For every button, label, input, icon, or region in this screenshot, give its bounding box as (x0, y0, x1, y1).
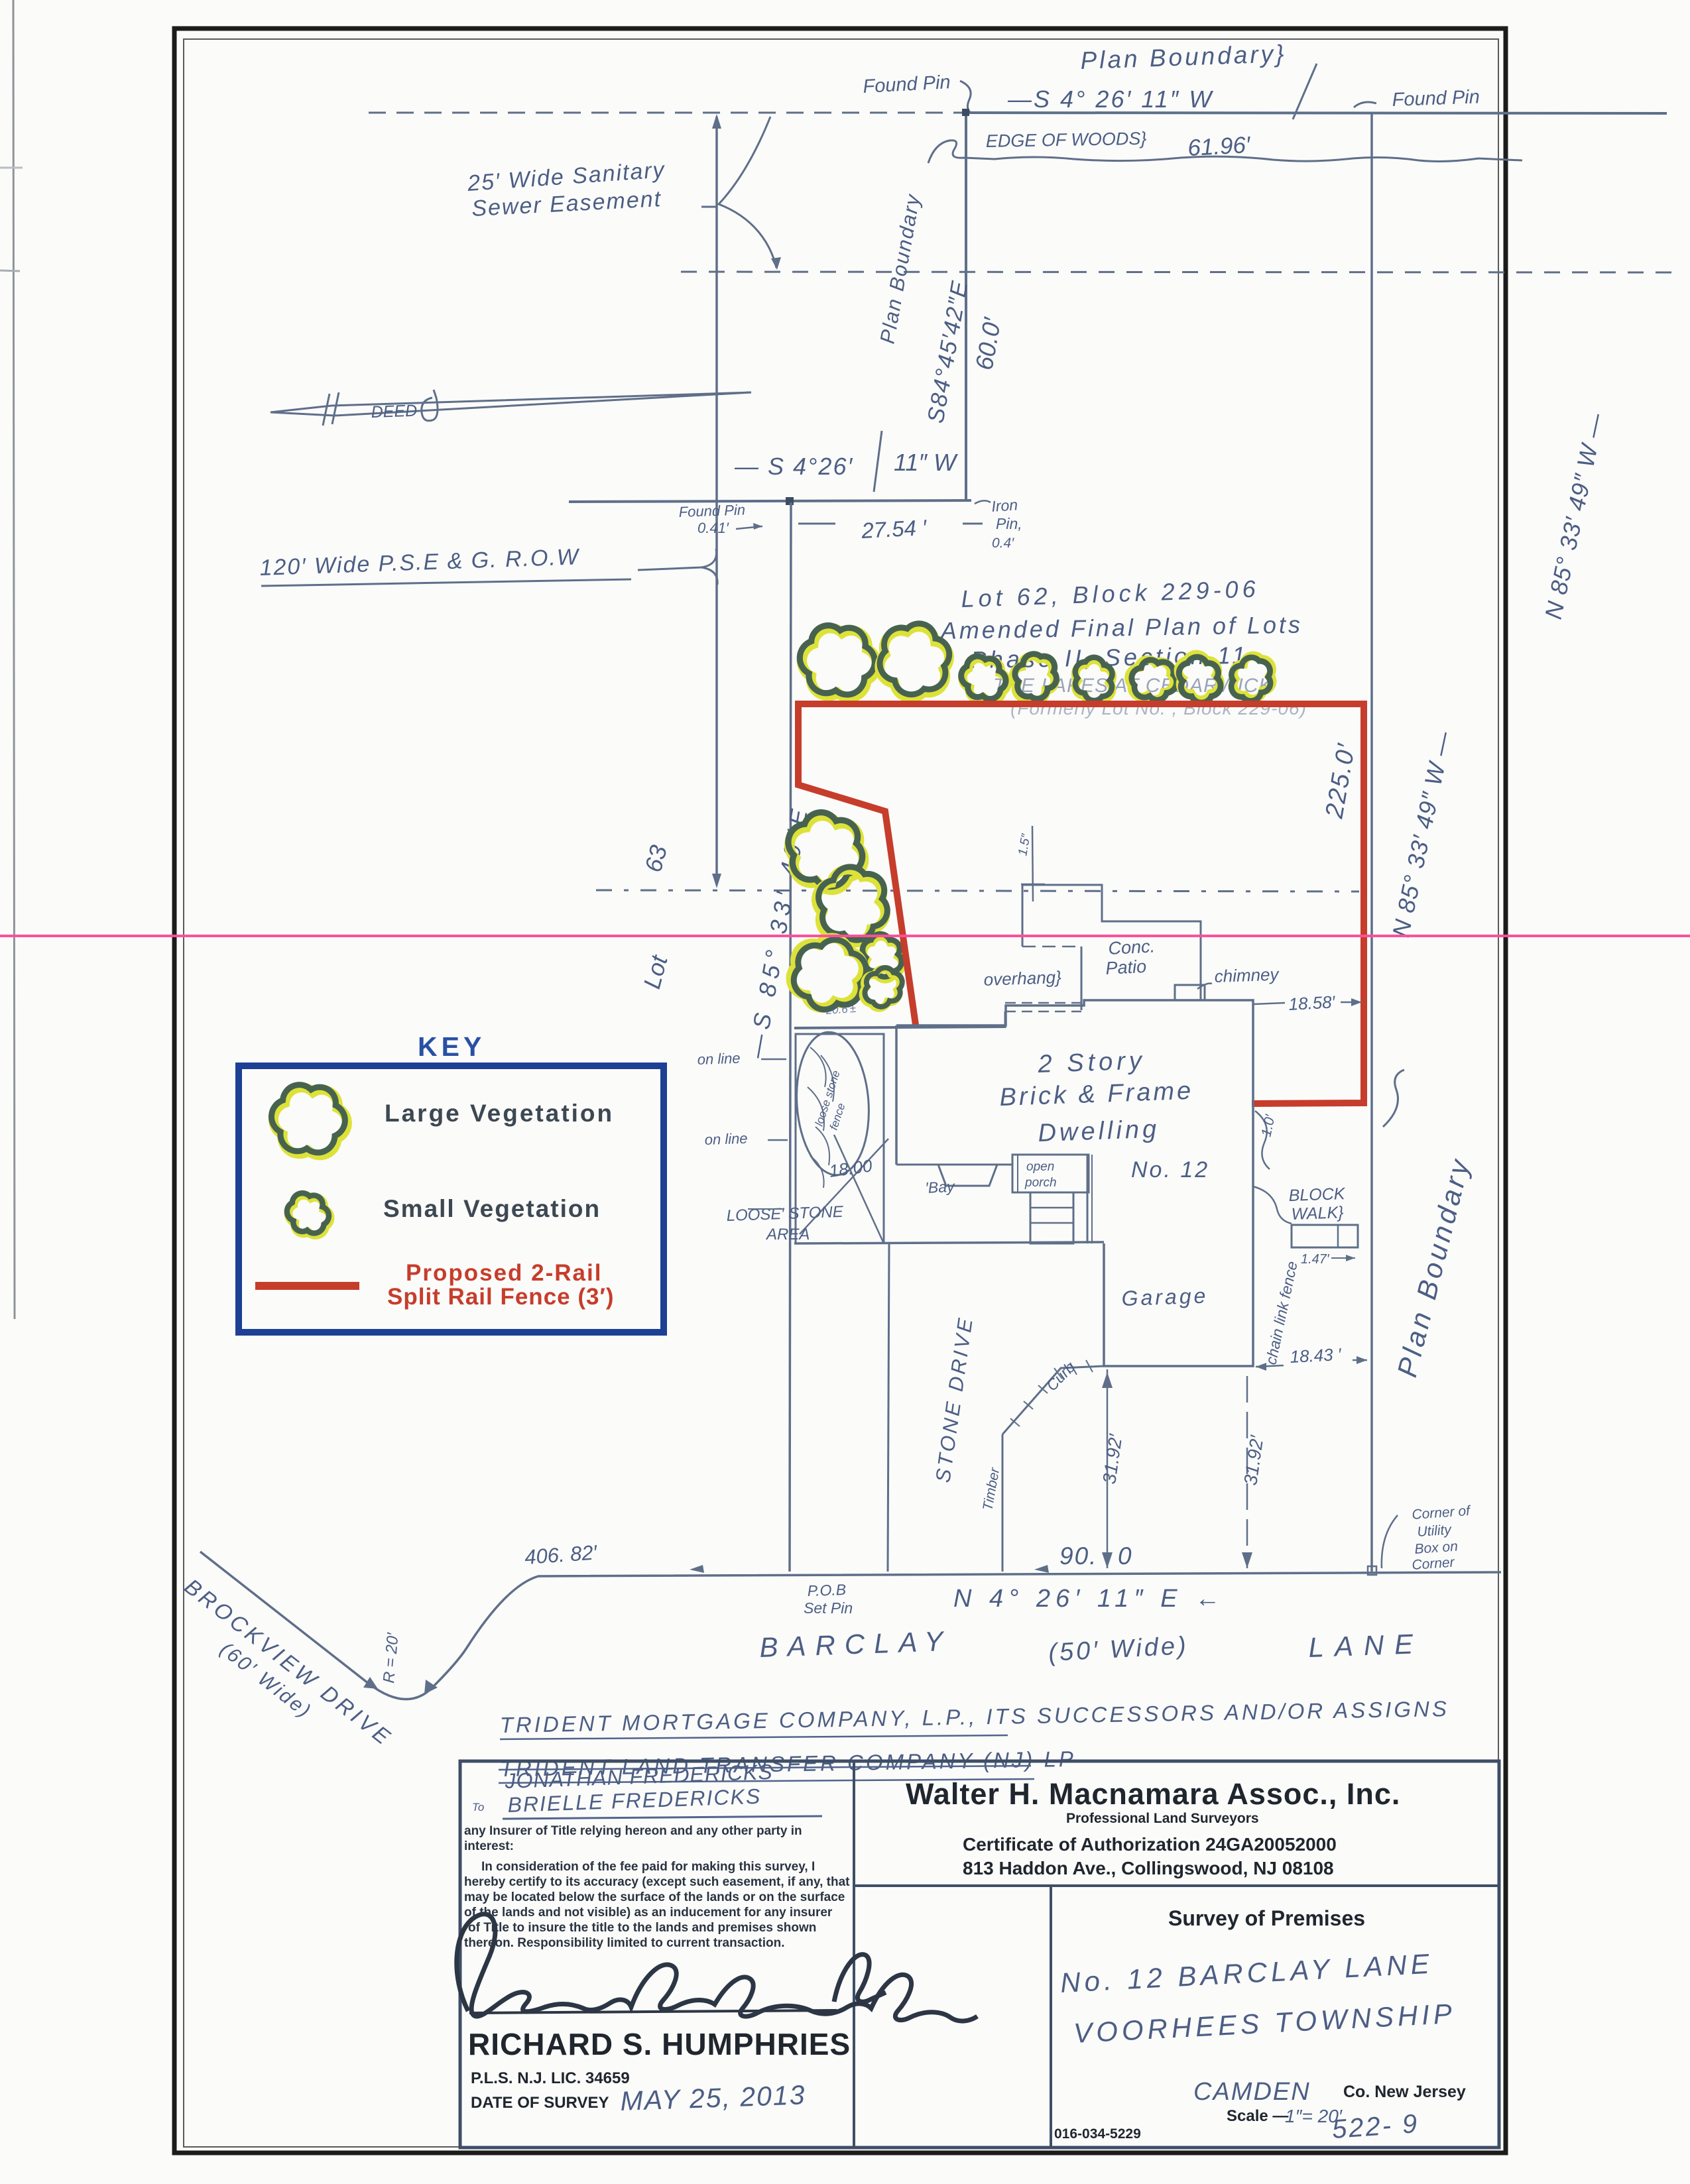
svg-text:BROCKVIEW DRIVE: BROCKVIEW DRIVE (180, 1574, 398, 1751)
svg-text:Scale —: Scale — (1227, 2107, 1288, 2125)
svg-text:Found Pin: Found Pin (863, 72, 951, 97)
svg-text:60.0′: 60.0′ (971, 315, 1006, 372)
svg-text:RICHARD S. HUMPHRIES: RICHARD S. HUMPHRIES (468, 2027, 851, 2061)
svg-text:Set Pin: Set Pin (804, 1599, 853, 1617)
svg-text:813 Haddon Ave., Collingswood,: 813 Haddon Ave., Collingswood, NJ 08108 (963, 1858, 1334, 1878)
svg-text:EDGE OF WOODS}: EDGE OF WOODS} (986, 129, 1147, 151)
svg-text:R = 20′: R = 20′ (380, 1631, 402, 1684)
svg-text:To: To (472, 1801, 484, 1813)
svg-text:may be located below the surfa: may be located below the surface of the … (464, 1890, 845, 1904)
svg-text:Survey of Premises: Survey of Premises (1168, 1906, 1365, 1930)
svg-text:120′ Wide P.S.E & G. R.O.W: 120′ Wide P.S.E & G. R.O.W (259, 544, 581, 581)
svg-text:0.4′: 0.4′ (992, 536, 1014, 551)
svg-text:Found Pin: Found Pin (1392, 86, 1480, 111)
svg-text:Amended Final Plan of Lots: Amended Final Plan of Lots (939, 610, 1303, 644)
svg-text:AREA: AREA (765, 1226, 810, 1243)
svg-text:0.41′: 0.41′ (697, 520, 729, 536)
svg-text:Dwelling: Dwelling (1038, 1116, 1160, 1147)
svg-text:(50′ Wide): (50′ Wide) (1048, 1632, 1189, 1667)
svg-text:overhang}: overhang} (983, 967, 1061, 990)
svg-text:BLOCK: BLOCK (1288, 1184, 1346, 1205)
svg-text:Corner: Corner (1412, 1554, 1456, 1572)
svg-text:WALK}: WALK} (1291, 1203, 1344, 1224)
svg-text:Timber: Timber (980, 1466, 1002, 1512)
svg-text:31.92′: 31.92′ (1099, 1432, 1126, 1485)
svg-text:N 85° 33′ 49″ W —: N 85° 33′ 49″ W — (1387, 728, 1457, 940)
svg-text:Professional Land Surveyors: Professional Land Surveyors (1066, 1811, 1259, 1826)
svg-text:BARCLAY: BARCLAY (759, 1625, 953, 1663)
svg-text:N 85° 33′ 49″ W —: N 85° 33′ 49″ W — (1539, 410, 1610, 622)
svg-text:90.: 90. (1059, 1542, 1097, 1570)
svg-text:thereon. Responsibility limite: thereon. Responsibility limited to curre… (464, 1936, 785, 1950)
svg-text:Conc.: Conc. (1108, 936, 1156, 958)
svg-text:Plan Boundary: Plan Boundary (1391, 1153, 1476, 1380)
svg-text:DEED: DEED (371, 402, 417, 422)
svg-text:Certificate of Authorization 2: Certificate of Authorization 24GA2005200… (963, 1834, 1337, 1855)
svg-text:18.58′: 18.58′ (1288, 992, 1337, 1014)
svg-text:Split Rail Fence (3′): Split Rail Fence (3′) (387, 1284, 615, 1310)
svg-text:Garage: Garage (1121, 1283, 1209, 1310)
svg-text:Brick & Frame: Brick & Frame (999, 1077, 1194, 1112)
svg-text:27.54 ′: 27.54 ′ (860, 515, 928, 543)
svg-text:porch: porch (1024, 1176, 1057, 1190)
svg-text:LOOSE′ STONE: LOOSE′ STONE (726, 1203, 844, 1225)
svg-text:Walter H. Macnamara Assoc., In: Walter H. Macnamara Assoc., Inc. (906, 1777, 1400, 1811)
svg-text:Proposed 2-Rail: Proposed 2-Rail (406, 1260, 602, 1286)
svg-text:Lot: Lot (638, 951, 673, 992)
svg-text:Lot 62, Block 229-06: Lot 62, Block 229-06 (961, 575, 1260, 612)
svg-text:LANE: LANE (1308, 1628, 1424, 1663)
svg-text:P.O.B: P.O.B (807, 1581, 846, 1599)
svg-text:Large Vegetation: Large Vegetation (385, 1100, 614, 1127)
svg-text:406. 82′: 406. 82′ (524, 1540, 599, 1569)
svg-text:chimney: chimney (1214, 964, 1280, 986)
svg-text:522- 9: 522- 9 (1331, 2109, 1420, 2144)
svg-text:Plan Boundary: Plan Boundary (875, 192, 924, 345)
svg-text:Utility: Utility (1417, 1522, 1453, 1540)
svg-text:Plan Boundary}: Plan Boundary} (1080, 40, 1287, 74)
svg-text:MAY 25, 2013: MAY 25, 2013 (620, 2079, 806, 2116)
svg-text:Small Vegetation: Small Vegetation (383, 1195, 601, 1222)
svg-text:of the lands and not visible): of the lands and not visible) as an indu… (464, 1906, 833, 1920)
svg-text:Co. New Jersey: Co. New Jersey (1343, 2083, 1466, 2101)
svg-text:DATE OF SURVEY: DATE OF SURVEY (471, 2094, 609, 2112)
svg-text:11″ W: 11″ W (894, 449, 958, 476)
svg-text:016-034-5229: 016-034-5229 (1054, 2126, 1141, 2142)
svg-text:Patio: Patio (1105, 956, 1147, 978)
svg-text:18.00: 18.00 (828, 1155, 874, 1181)
svg-text:18.43 ′: 18.43 ′ (1290, 1344, 1343, 1367)
svg-text:Curb: Curb (1043, 1358, 1078, 1394)
svg-text:Pin,: Pin, (996, 515, 1022, 532)
svg-text:—S 4° 26′ 11″ W: —S 4° 26′ 11″ W (1007, 86, 1213, 113)
svg-text:STONE DRIVE: STONE DRIVE (931, 1314, 977, 1484)
svg-text:1.5″: 1.5″ (1016, 832, 1034, 857)
svg-text:31.92′: 31.92′ (1240, 1433, 1267, 1487)
svg-text:—S 85° 33′ 49″E: —S 85° 33′ 49″E (742, 802, 814, 1061)
svg-text:′Bay: ′Bay (925, 1178, 956, 1196)
svg-text:0: 0 (1118, 1542, 1132, 1570)
svg-text:P.L.S. N.J. LIC. 34659: P.L.S. N.J. LIC. 34659 (471, 2069, 630, 2087)
svg-text:No. 12: No. 12 (1131, 1157, 1209, 1182)
svg-text:Iron: Iron (991, 496, 1018, 515)
svg-text:any Insurer of Title relying: any Insurer of Title relying hereon and … (464, 1824, 802, 1838)
svg-text:on line: on line (704, 1130, 748, 1148)
svg-text:hereby certify to its accuracy: hereby certify to its accuracy (except s… (464, 1875, 850, 1889)
svg-text:Corner of: Corner of (1412, 1503, 1472, 1523)
svg-text:open: open (1026, 1160, 1054, 1174)
svg-text:In consideration of the fee pa: In consideration of the fee paid for mak… (481, 1860, 815, 1874)
svg-text:CAMDEN: CAMDEN (1193, 2078, 1311, 2106)
svg-text:of Title to insure the title t: of Title to insure the title to the land… (468, 1921, 816, 1935)
svg-text:interest:: interest: (464, 1839, 514, 1853)
svg-text:1.47′: 1.47′ (1301, 1252, 1330, 1267)
svg-text:20.6′±: 20.6′± (825, 1002, 857, 1017)
svg-text:225.0′: 225.0′ (1320, 741, 1360, 821)
svg-text:2 Story: 2 Story (1037, 1047, 1146, 1078)
svg-text:VOORHEES TOWNSHIP: VOORHEES TOWNSHIP (1073, 1998, 1457, 2049)
svg-text:— S 4°26′: — S 4°26′ (734, 453, 853, 480)
svg-text:63: 63 (639, 842, 672, 875)
svg-text:N 4° 26′ 11″ E ←: N 4° 26′ 11″ E ← (953, 1585, 1225, 1613)
svg-text:on line: on line (697, 1050, 741, 1068)
svg-text:TRIDENT MORTGAGE COMPANY, L.P.: TRIDENT MORTGAGE COMPANY, L.P., ITS SUCC… (499, 1696, 1449, 1737)
svg-text:No. 12 BARCLAY LANE: No. 12 BARCLAY LANE (1059, 1948, 1434, 1998)
svg-text:Found Pin: Found Pin (678, 502, 745, 520)
svg-text:KEY: KEY (418, 1031, 485, 1062)
